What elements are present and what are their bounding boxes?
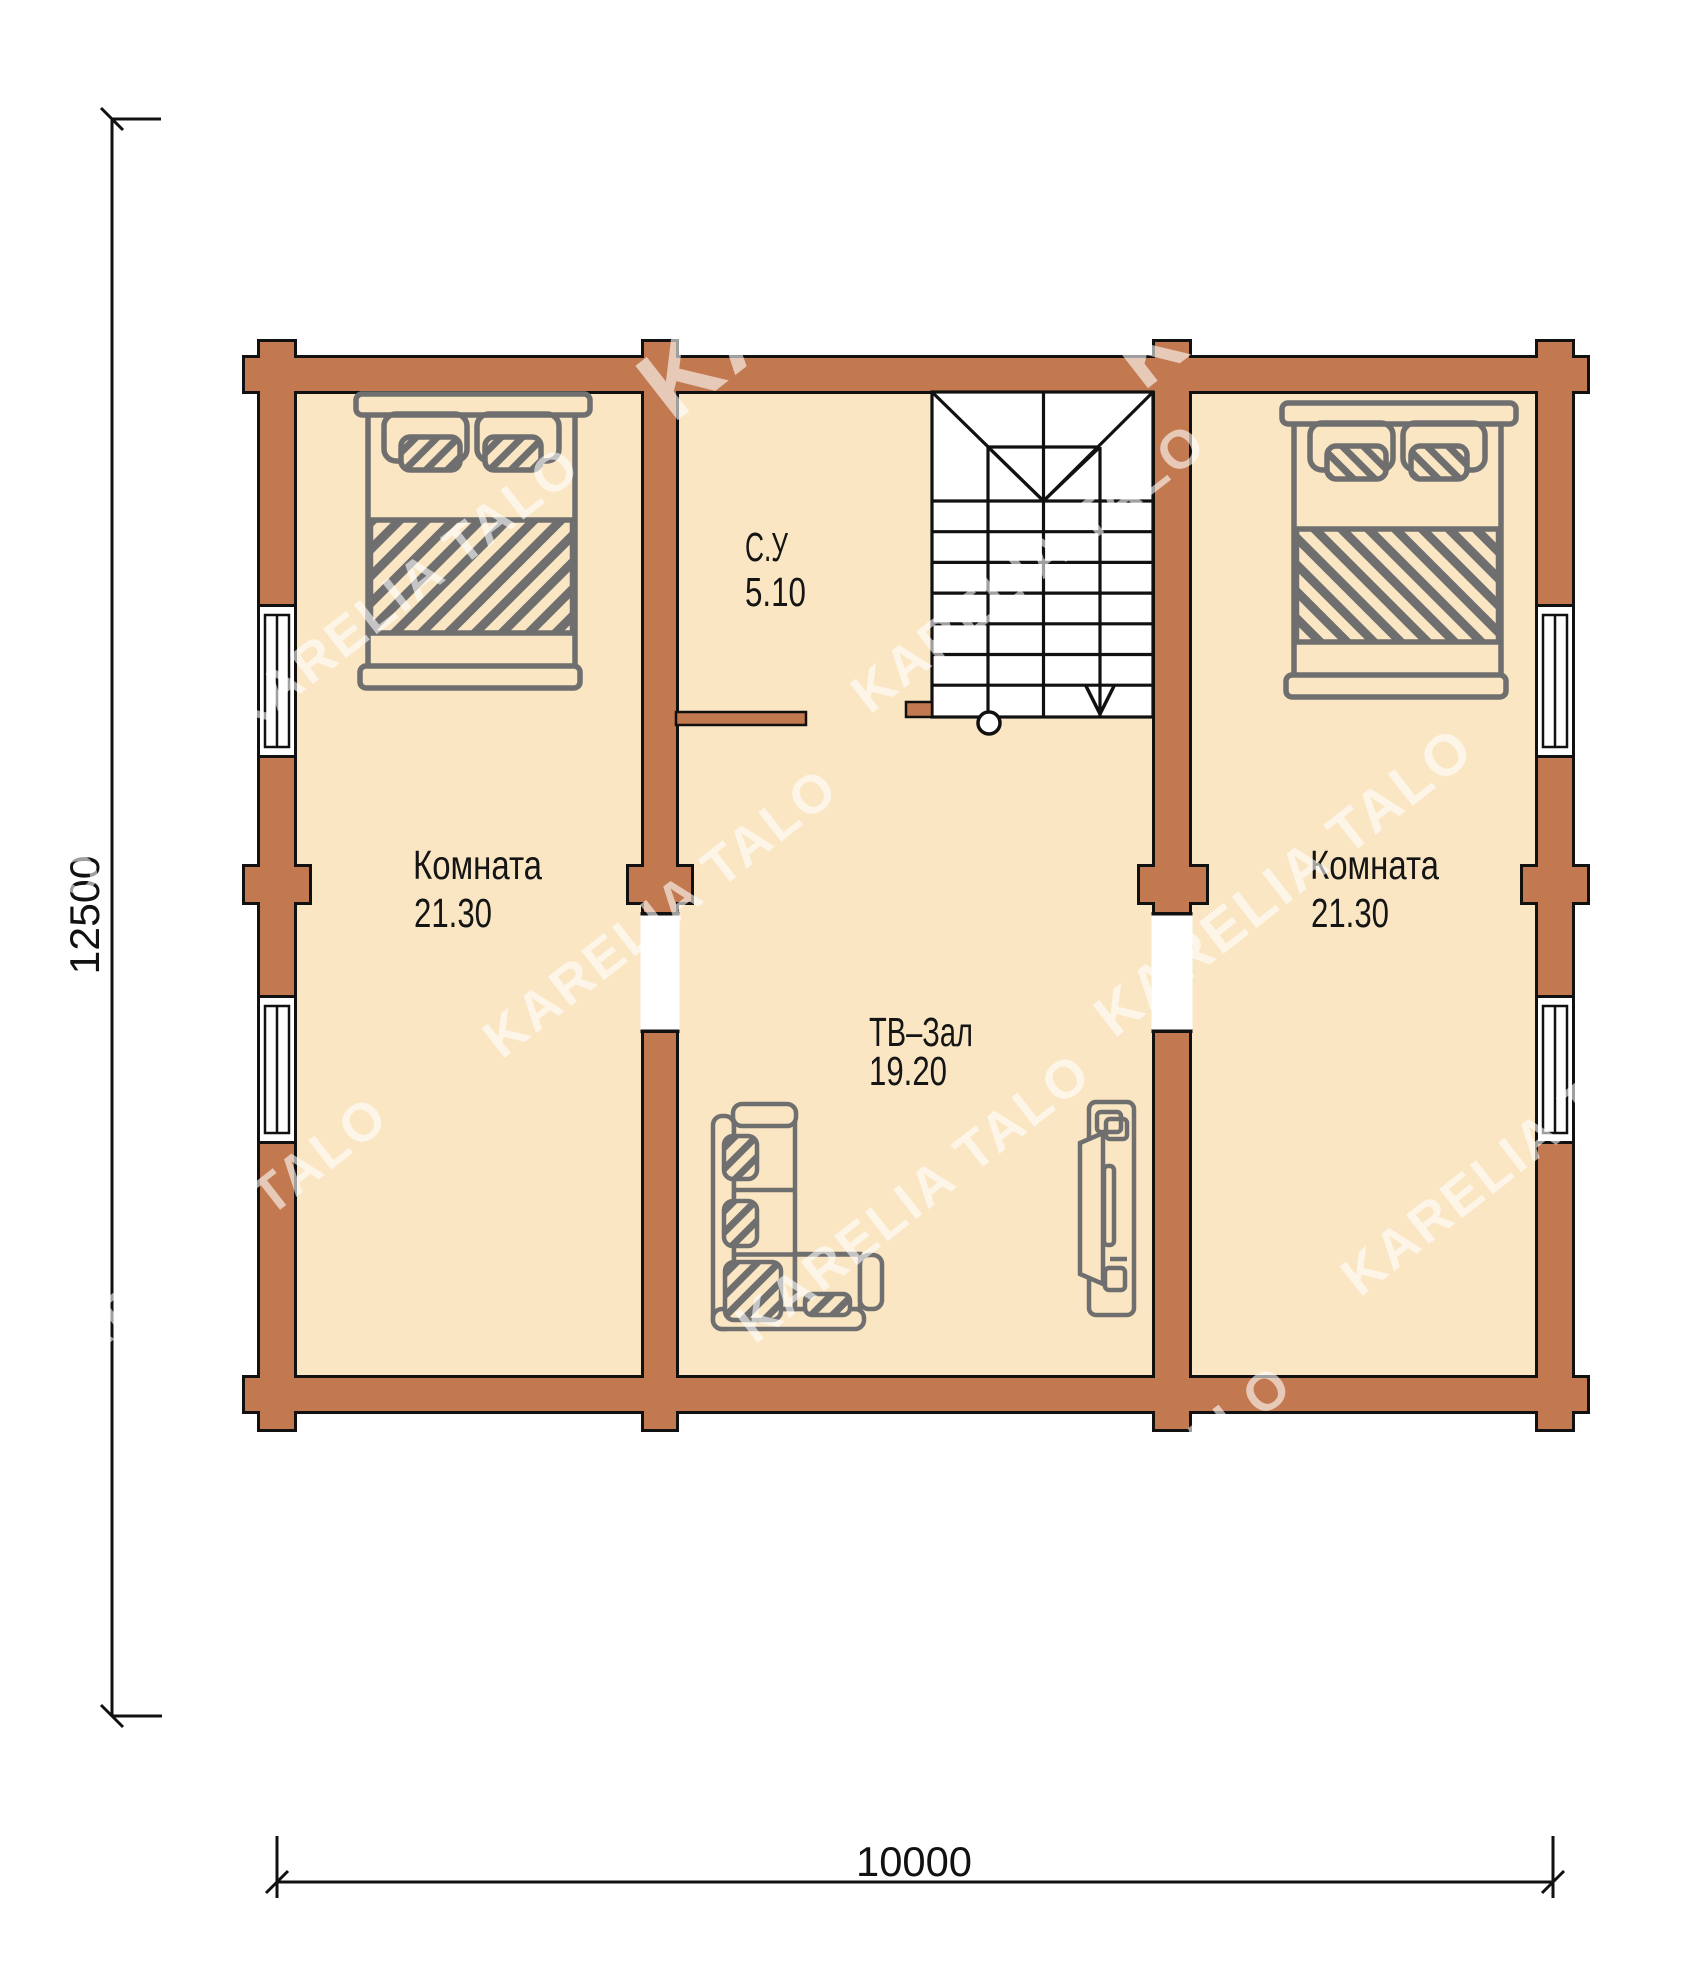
svg-text:С.У: С.У [745, 524, 789, 570]
svg-text:21.30: 21.30 [414, 890, 492, 936]
svg-text:19.20: 19.20 [869, 1048, 947, 1094]
svg-text:KARELIA TALO: KARELIA TALO [1097, 0, 1684, 407]
svg-text:Комната: Комната [413, 842, 542, 888]
svg-text:10000: 10000 [856, 1838, 972, 1885]
svg-text:21.30: 21.30 [1311, 890, 1389, 936]
svg-text:KARELIA TALO: KARELIA TALO [0, 836, 116, 1149]
svg-text:5.10: 5.10 [745, 569, 806, 615]
